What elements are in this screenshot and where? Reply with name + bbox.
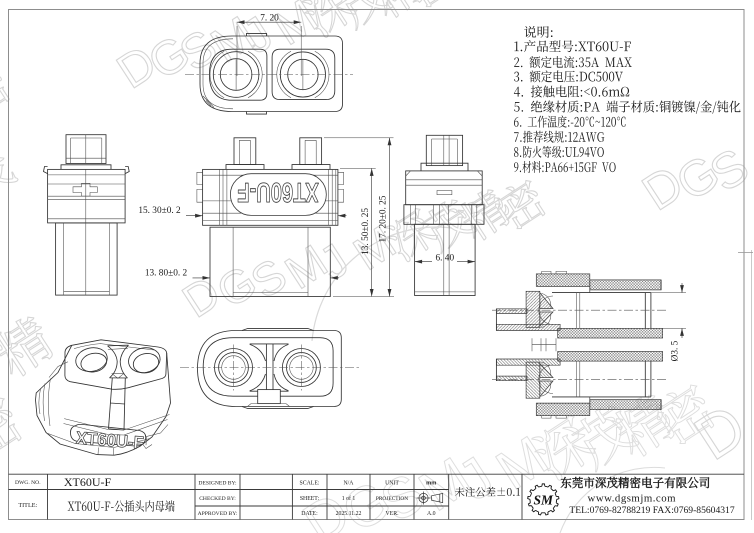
svg-text:XT60U-F: XT60U-F [64, 475, 112, 489]
svg-text:VER.: VER. [385, 511, 399, 517]
svg-text:DESIGNED BY:: DESIGNED BY: [198, 480, 237, 486]
svg-text:6. 40: 6. 40 [436, 253, 455, 263]
svg-text:SHEET:: SHEET: [300, 496, 320, 502]
svg-text:PROJECTION: PROJECTION [376, 496, 408, 502]
svg-text:15. 30±0. 2: 15. 30±0. 2 [138, 206, 181, 216]
svg-text:DWG. NO.: DWG. NO. [15, 480, 41, 486]
svg-text:7. 20: 7. 20 [260, 14, 279, 24]
svg-text:www.dgsmjm.com: www.dgsmjm.com [588, 492, 677, 504]
svg-text:DATE:: DATE: [301, 511, 318, 517]
svg-text:CHECKED BY:: CHECKED BY: [199, 496, 236, 502]
svg-text:TITLE:: TITLE: [18, 502, 37, 509]
svg-text:SCALE:: SCALE: [300, 480, 320, 486]
svg-text:Ø3. 5: Ø3. 5 [671, 340, 681, 361]
svg-text:UNIT: UNIT [385, 480, 399, 486]
svg-text:13. 50±0. 25: 13. 50±0. 25 [361, 208, 371, 255]
svg-text:TEL:0769-82788219 FAX:0769-85: TEL:0769-82788219 FAX:0769-85604317 [569, 505, 735, 516]
svg-text:APPROVED BY:: APPROVED BY: [198, 511, 238, 517]
svg-text:mm: mm [426, 480, 436, 486]
svg-text:13. 80±0. 2: 13. 80±0. 2 [145, 268, 188, 278]
svg-text:1 of 1: 1 of 1 [342, 495, 356, 502]
svg-text:N/A: N/A [344, 480, 355, 486]
svg-text:SM: SM [534, 492, 555, 507]
svg-text:A.0: A.0 [427, 511, 436, 517]
svg-text:17. 20±0. 25: 17. 20±0. 25 [379, 195, 389, 242]
svg-text:2025.11.22: 2025.11.22 [336, 511, 362, 517]
